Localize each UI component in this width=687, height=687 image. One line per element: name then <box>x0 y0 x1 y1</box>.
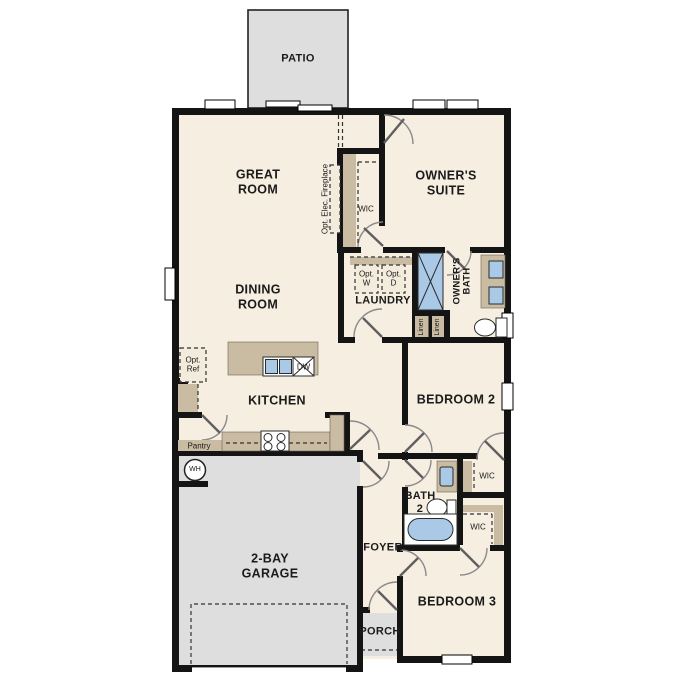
bath2-tub <box>408 519 453 541</box>
laundry-counter <box>350 257 412 265</box>
laundry-label: LAUNDRY <box>355 295 410 308</box>
owners-sink-2 <box>489 287 503 304</box>
wic3-shelf-side <box>494 512 503 545</box>
water-heater-label: WH <box>189 466 201 474</box>
kitchen-label: KITCHEN <box>248 394 306 409</box>
bath2-label: BATH 2 <box>405 490 436 516</box>
patio-label: PATIO <box>281 53 314 66</box>
wic-bedroom3-label: WIC <box>470 522 486 531</box>
wic2-shelf <box>463 461 472 492</box>
floor-plan: PATIO GREAT ROOM OWNER'S SUITE Opt. Elec… <box>0 0 687 687</box>
owners-wic-label: WIC <box>358 204 374 213</box>
bath2-toilet-tank <box>447 500 456 515</box>
owners-bath-label: OWNER'S BATH <box>453 257 474 304</box>
opt-fireplace-label: Opt. Elec. Fireplace <box>320 164 329 234</box>
sink-basin-right <box>280 360 292 374</box>
wic-bedroom2-label: WIC <box>479 471 495 480</box>
owners-sink-1 <box>489 261 503 278</box>
sink-basin-left <box>266 360 278 374</box>
opt-fireplace-box <box>330 165 340 233</box>
dining-room-label: DINING ROOM <box>235 282 281 312</box>
bath2-sink <box>440 467 453 486</box>
owners-toilet-bowl <box>475 319 496 336</box>
great-room-label: GREAT ROOM <box>236 167 280 197</box>
opt-dryer-label: Opt. D <box>386 270 401 289</box>
linen-left-label: Linen <box>417 318 425 335</box>
left-cabinet <box>178 384 198 412</box>
pantry-label: Pantry <box>187 441 210 450</box>
owners-toilet-tank <box>496 318 507 337</box>
bedroom2-label: BEDROOM 2 <box>417 393 495 408</box>
owners-wic-shelf <box>343 154 356 247</box>
counter-return <box>330 415 344 451</box>
opt-ref-label: Opt. Ref <box>185 356 200 375</box>
bedroom3-label: BEDROOM 3 <box>418 595 496 610</box>
opt-washer-label: Opt. W <box>359 270 374 289</box>
garage-label: 2-BAY GARAGE <box>242 551 299 581</box>
linen-right-label: Linen <box>434 318 442 335</box>
owners-suite-label: OWNER'S SUITE <box>415 168 476 198</box>
floor-plan-geometry <box>0 0 687 687</box>
porch-label: PORCH <box>359 626 400 639</box>
dishwasher-label: DW <box>297 362 310 371</box>
foyer-label: FOYER <box>363 542 402 555</box>
wic3-shelf-top <box>463 505 503 512</box>
